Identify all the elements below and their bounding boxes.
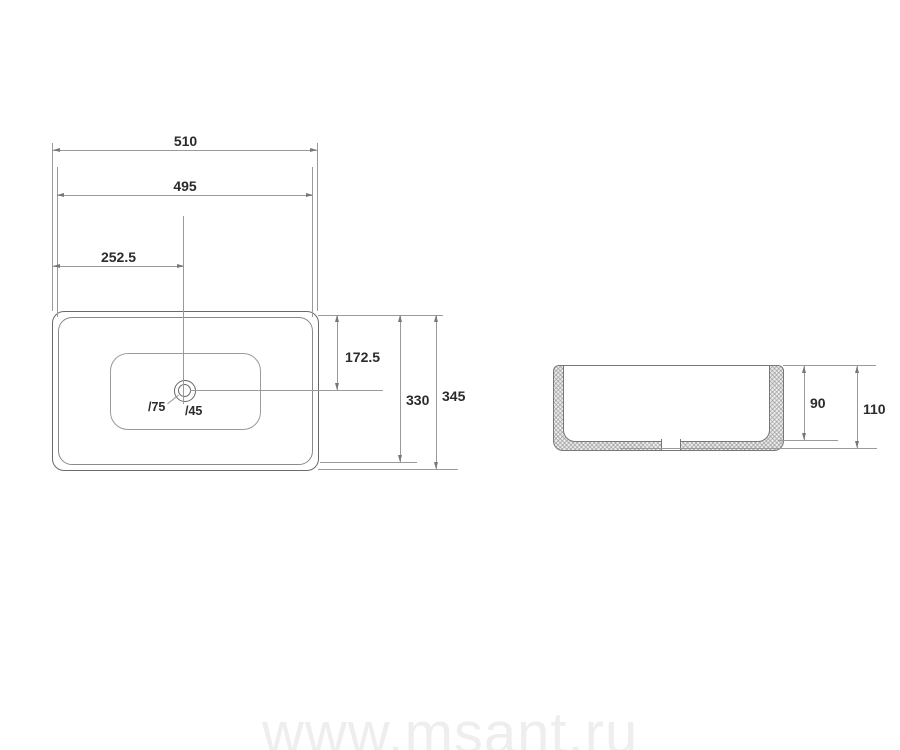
dimension-line-90 — [804, 366, 805, 440]
drain-center-line — [183, 216, 184, 404]
arrow-down-icon — [802, 433, 806, 440]
extension-line-bottom-inner — [320, 462, 417, 463]
dimension-label-252.5: 252.5 — [53, 249, 184, 265]
dimension-line-110 — [857, 366, 858, 448]
technical-drawing-canvas: 510 495 252.5 172.5 330 345 /75 /45 90 1… — [0, 0, 900, 750]
drain-horizontal-line — [190, 390, 383, 391]
extension-line-section-top — [783, 365, 876, 366]
arrow-down-icon — [434, 462, 438, 469]
dimension-label-510: 510 — [53, 133, 318, 149]
arrow-down-icon — [398, 455, 402, 462]
extension-line-section-inner-bottom — [778, 440, 838, 441]
drain-diameter-label-45: /45 — [185, 404, 202, 418]
dimension-line-345 — [436, 315, 437, 469]
dimension-line-252.5 — [53, 266, 184, 267]
extension-line-bottom-outer — [318, 469, 458, 470]
dimension-label-495: 495 — [57, 178, 313, 194]
extension-line-right-outer — [317, 143, 318, 311]
arrow-up-icon — [802, 366, 806, 373]
arrow-down-icon — [855, 441, 859, 448]
extension-line-left-outer — [52, 143, 53, 311]
dimension-line-172.5 — [337, 315, 338, 390]
arrow-down-icon — [335, 383, 339, 390]
dimension-line-495 — [57, 195, 313, 196]
dimension-label-345: 345 — [442, 388, 465, 404]
arrow-up-icon — [434, 315, 438, 322]
dimension-line-330 — [400, 315, 401, 462]
arrow-up-icon — [335, 315, 339, 322]
section-inner-cavity — [563, 365, 770, 442]
watermark-text: www.msant.ru — [262, 700, 638, 750]
section-bottom-surface-line — [620, 448, 877, 449]
arrow-up-icon — [855, 366, 859, 373]
dimension-label-110: 110 — [863, 401, 886, 417]
dimension-line-510 — [53, 150, 318, 151]
drain-diameter-label-75: /75 — [148, 400, 165, 414]
dimension-label-330: 330 — [406, 392, 429, 408]
dimension-label-90: 90 — [810, 395, 826, 411]
dimension-label-172.5: 172.5 — [345, 349, 380, 365]
arrow-up-icon — [398, 315, 402, 322]
